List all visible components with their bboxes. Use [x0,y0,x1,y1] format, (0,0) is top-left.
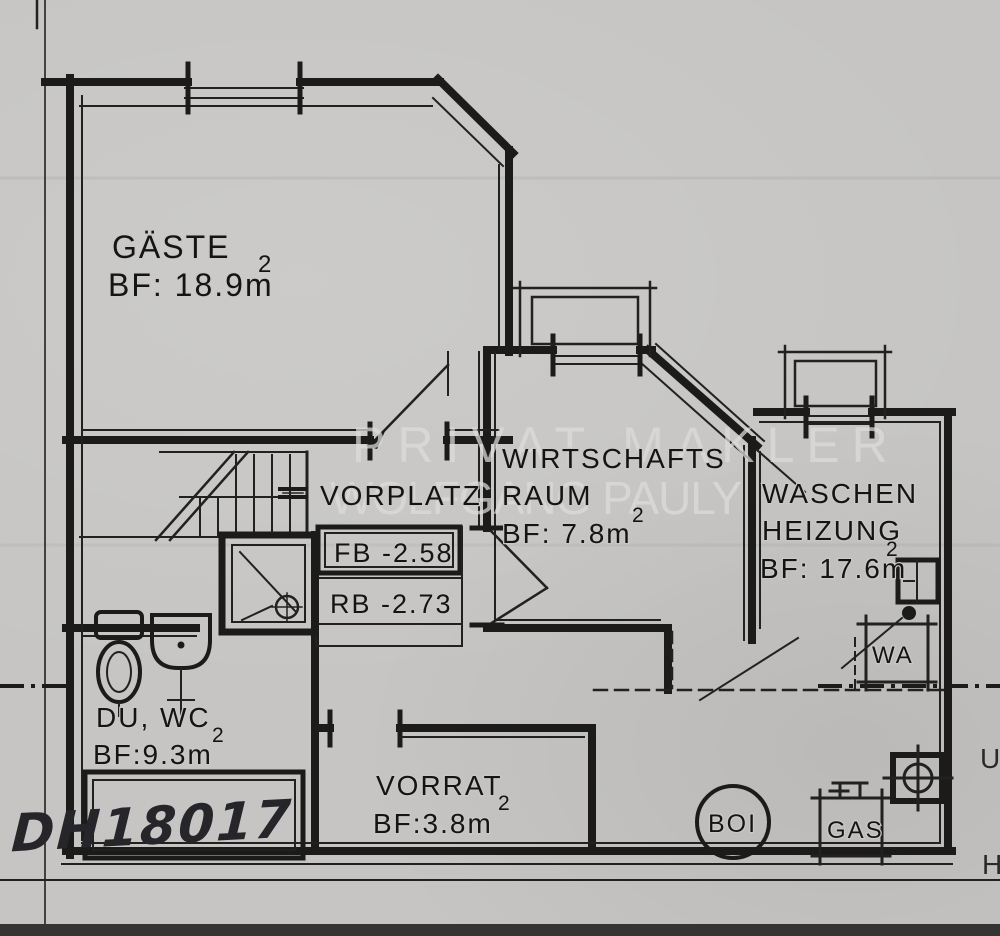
connection-dot [902,606,916,620]
floor-drain-icon [884,746,952,810]
edge-fragment-lower: H [982,849,1000,880]
room-label-raum: RAUM [502,480,592,511]
shower [222,535,315,632]
floorplan-sheet: PRIVAT MAKLER WOLFGANG PAULY GÄSTE BF: 1… [0,0,1000,936]
area-label-gaeste: BF: 18.9m [108,267,274,303]
light-shaft-wirt [514,282,656,356]
area-label-duwc: BF:9.3m [93,739,213,770]
washing-machine-label: WA [872,642,914,669]
room-label-vorplatz: VORPLATZ [320,480,482,511]
ceiling-level-label: RB -2.73 [330,589,453,619]
light-shaft-waschen [779,346,891,418]
room-label-duwc: DU, WC [96,702,211,733]
floorplan-svg: PRIVAT MAKLER WOLFGANG PAULY GÄSTE BF: 1… [0,0,1000,936]
room-label-gaeste: GÄSTE [112,229,230,265]
room-label-vorrat: VORRAT [376,770,503,801]
boiler-label: BOI [708,810,757,838]
room-label-heizung: HEIZUNG [762,515,902,546]
sup-vorrat: 2 [498,792,510,815]
stairs [80,452,307,540]
gas-label: GAS [827,817,884,844]
chimney-vent-icon [280,489,306,497]
sup-wirtschaftsraum: 2 [632,504,644,527]
wall-chamfer [438,79,513,153]
sup-gaeste: 2 [258,251,271,278]
area-label-wirtschaftsraum: BF: 7.8m [502,518,632,549]
edge-fragment-upper: U [980,743,1000,774]
floor-level-label: FB -2.58 [334,538,454,568]
area-label-vorrat: BF:3.8m [373,808,493,839]
room-label-waschen: WASCHEN [762,478,918,509]
sup-waschen: 2 [886,538,898,561]
sup-duwc: 2 [212,724,224,747]
bottom-band [0,924,1000,936]
room-label-wirtschafts: WIRTSCHAFTS [502,443,726,474]
windows [185,64,891,436]
